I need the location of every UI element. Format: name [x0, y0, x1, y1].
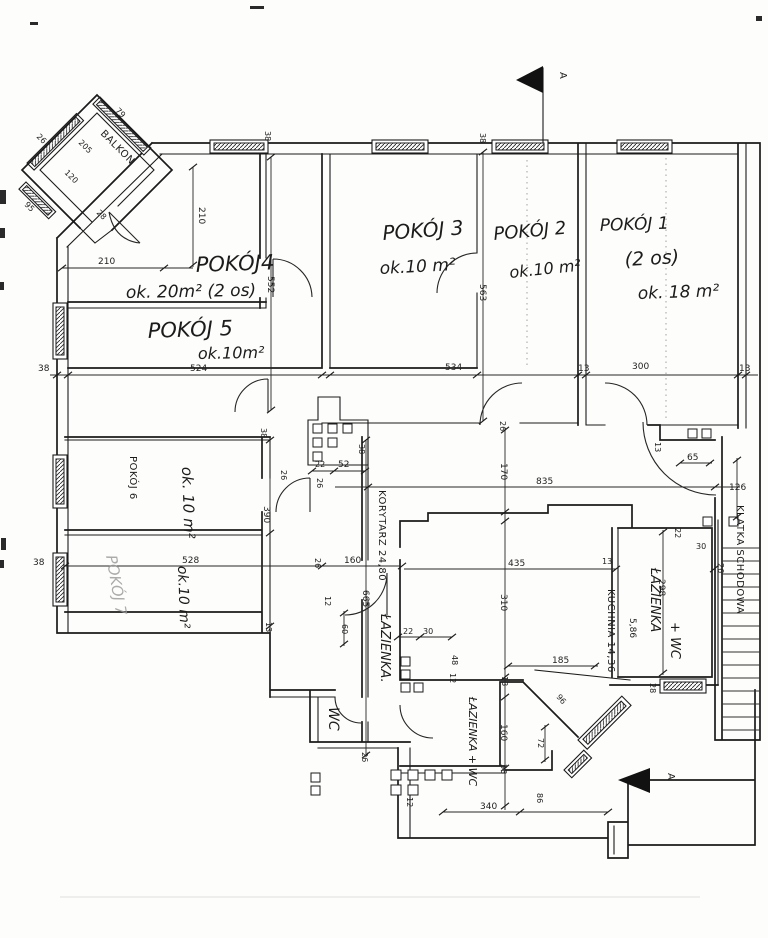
dim-120-balkon: 120	[63, 168, 80, 185]
dim-160-v: 160	[498, 724, 508, 741]
dim-26-p2door: 26	[498, 421, 507, 431]
window-pokoj6	[53, 455, 67, 508]
dim-13-a: 13	[578, 364, 589, 374]
room-label-kuchnia: KUCHNIA 14,36	[605, 589, 616, 673]
dim-835: 835	[536, 477, 553, 487]
vent-shafts	[311, 424, 738, 795]
dim-298: 298	[656, 579, 666, 596]
dim-205-balkon: 205	[77, 138, 94, 155]
dim-26-klatka: 26	[716, 563, 725, 573]
dim-22-flue: 22	[315, 460, 325, 469]
dim-435: 435	[508, 559, 525, 569]
room-area-pokoj5: ok.10m²	[198, 343, 265, 363]
window-diagonal-large	[578, 696, 631, 749]
dim-38-left: 38	[38, 364, 50, 374]
window-pokoj1	[617, 140, 672, 153]
dim-72: 72	[536, 738, 545, 748]
door-pokoj4	[273, 259, 312, 297]
dim-28-se: 28	[648, 683, 657, 693]
section-flag-top: A	[516, 66, 568, 143]
dim-13-b: 13	[739, 364, 750, 374]
dim-30-klatka: 30	[696, 542, 706, 551]
room-label-lazienka-right-wc: + WC	[667, 622, 682, 660]
dim-586: 5,86	[627, 618, 637, 638]
dim-528: 528	[182, 556, 199, 566]
dim-524: 524	[190, 364, 207, 374]
door-lazienka-wc-center	[400, 705, 433, 738]
dim-38-block: 38	[259, 428, 268, 438]
dim-665: 665	[360, 590, 370, 607]
room-label-klatka-schodowa: KLATKA SCHODOWA	[734, 505, 745, 614]
dim-26-door6: 26	[315, 478, 324, 488]
room-label-lazienka-right: ŁAZIENKA	[647, 567, 662, 632]
dim-552: 552	[265, 276, 275, 293]
dim-185: 185	[552, 656, 569, 666]
dim-390: 390	[261, 506, 271, 523]
dim-310: 310	[498, 594, 508, 611]
room-label-pokoj5: POKÓJ 5	[147, 315, 233, 343]
section-flag-bottom-triangle	[618, 768, 650, 793]
section-flag-top-triangle	[516, 66, 543, 93]
door-pokoj1	[605, 383, 647, 425]
window-pokoj7	[53, 553, 67, 606]
dim-13-c: 13	[500, 676, 509, 686]
room-label-korytarz: KORYTARZ 24,80	[376, 490, 387, 581]
dim-86: 86	[535, 793, 544, 803]
room-area-pokoj1: ok. 18 m²	[637, 281, 719, 304]
balcony-railing-nw	[27, 114, 84, 171]
dim-65: 65	[687, 453, 698, 463]
room-label-pokoj1: POKÓJ 1	[599, 212, 669, 236]
room-area-pokoj3: ok.10 m²	[379, 255, 456, 279]
dim-22-klatka: 22	[673, 528, 682, 538]
dim-96: 96	[554, 693, 567, 707]
floor-plan-drawing: A A POKÓJ4 ok. 20m² (2 os) POKÓJ 5 ok.10…	[0, 0, 768, 938]
dim-300: 300	[632, 362, 649, 372]
window-south-east	[660, 679, 706, 693]
room-label-pokoj3: POKÓJ 3	[382, 215, 465, 245]
window-diagonal-small	[564, 750, 592, 778]
scanned-floor-plan-page: A A POKÓJ4 ok. 20m² (2 os) POKÓJ 5 ok.10…	[0, 0, 768, 938]
door-pokoj5	[235, 379, 268, 412]
dim-13-entry: 13	[653, 442, 662, 452]
dim-12-c: 12	[448, 673, 457, 683]
dim-38-top-a: 38	[263, 131, 272, 141]
dim-126: 126	[729, 483, 746, 493]
dim-30-c: 30	[423, 627, 433, 636]
dim-22-c: 22	[403, 627, 413, 636]
dim-26-door6b: 26	[279, 470, 288, 480]
dim-12-wc: 12	[405, 797, 414, 807]
window-pokoj2	[492, 140, 548, 153]
section-marker-bottom: A	[665, 773, 676, 780]
door-pokoj6	[276, 478, 310, 512]
dim-26-strip: 26	[313, 558, 322, 568]
dim-38-top-b: 38	[478, 133, 487, 143]
section-marker-top: A	[557, 72, 568, 79]
dim-38-flue: 38	[357, 444, 366, 454]
room-area-pokoj4: ok. 20m² (2 os)	[126, 281, 257, 303]
room-label-pokoj4: POKÓJ4	[195, 249, 274, 277]
dim-160-h: 160	[344, 556, 361, 566]
dim-28-balkon: 28	[95, 208, 109, 222]
dim-38-bath: 38	[499, 764, 508, 774]
room-area-pokoj7: ok.10 m²	[174, 566, 192, 630]
dim-48: 48	[450, 655, 459, 665]
balcony-outline	[22, 95, 172, 243]
room-label-lazienka-center: ŁAZIENKA.	[377, 613, 392, 683]
dim-340: 340	[480, 802, 497, 812]
window-pokoj5	[53, 303, 67, 359]
dim-563: 563	[477, 284, 487, 301]
room-area-pokoj2: ok.10 m²	[508, 256, 582, 282]
dim-12-bath: 12	[323, 596, 332, 606]
window-pokoj3	[372, 140, 428, 153]
room-label-wc: WC	[325, 707, 341, 731]
room-label-pokoj7: POKÓJ 7	[102, 553, 131, 617]
dim-534: 534	[445, 363, 462, 373]
dim-210-h: 210	[98, 257, 115, 267]
room-occupancy-pokoj1: (2 os)	[624, 246, 680, 271]
dim-13-left: 13	[264, 622, 273, 632]
dim-52: 52	[338, 460, 349, 470]
window-pokoj4	[210, 140, 268, 153]
room-label-lazienka-wc-center: ŁAZIENKA + WC	[466, 696, 479, 786]
room-label-pokoj2: POKÓJ 2	[493, 217, 568, 245]
balcony-railing-sw	[19, 182, 56, 219]
dim-60: 60	[340, 624, 349, 634]
room-label-pokoj6: POKÓJ 6	[127, 456, 140, 500]
dim-170: 170	[498, 463, 508, 480]
dim-38-left2: 38	[33, 558, 45, 568]
room-area-pokoj6: ok. 10 m²	[178, 467, 198, 539]
dim-26-wc: 26	[360, 752, 369, 762]
dim-210-v: 210	[196, 207, 206, 224]
dim-13-kitchen: 13	[602, 557, 612, 566]
